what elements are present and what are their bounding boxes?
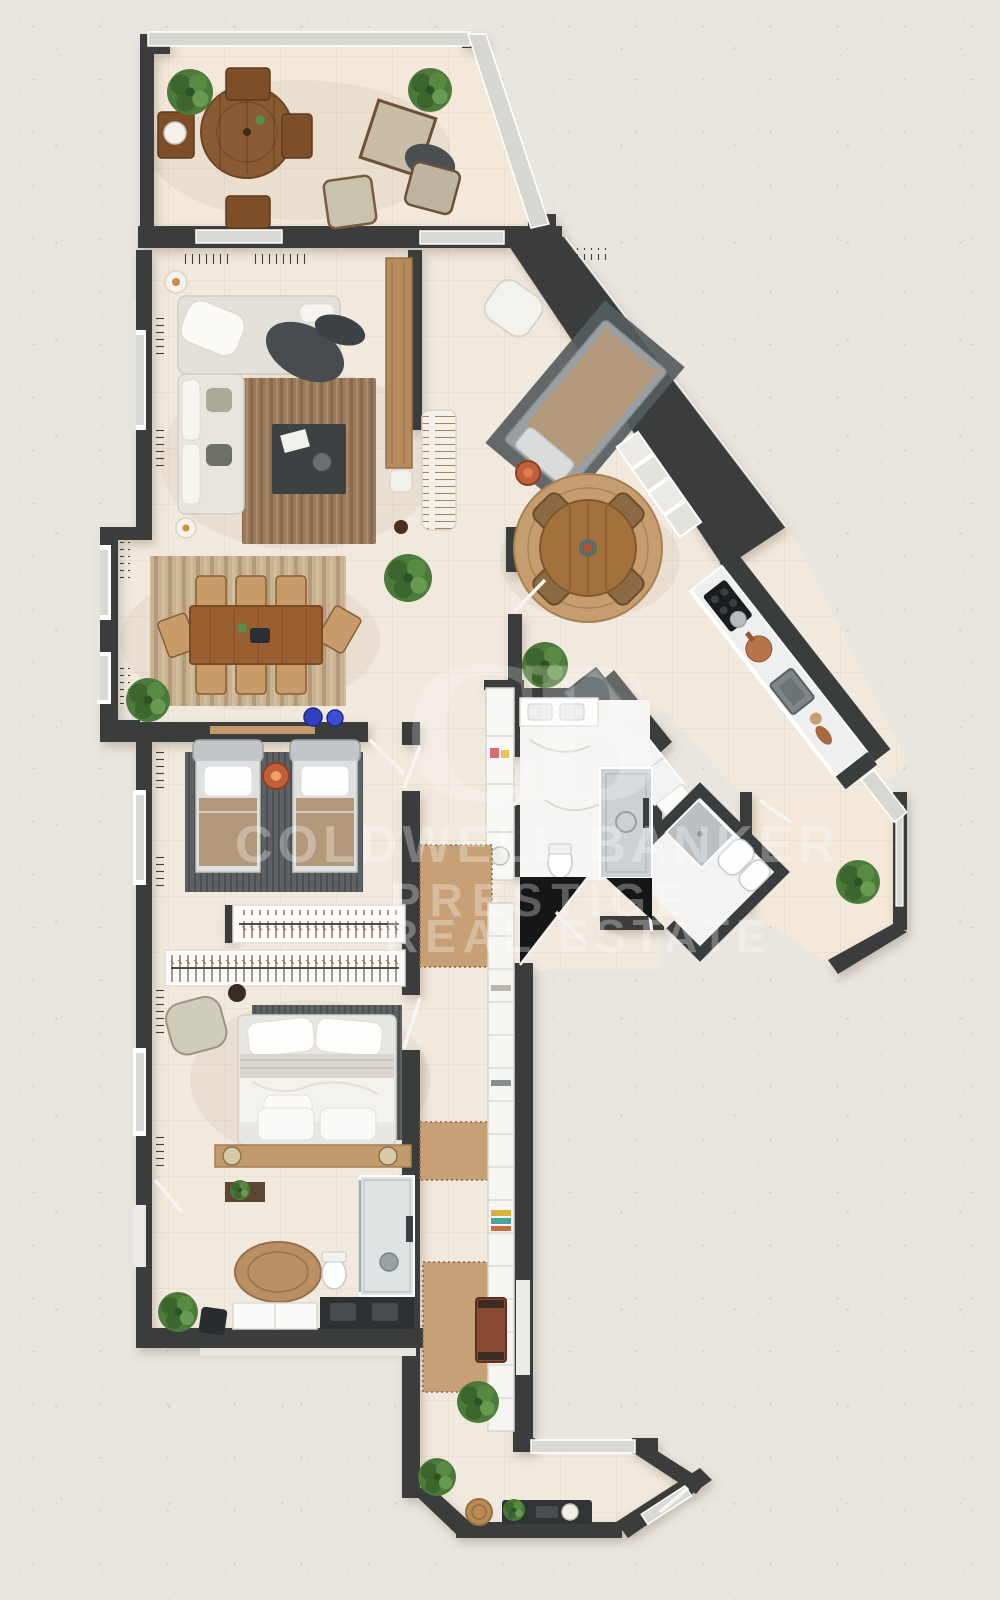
- plant-icon: [457, 1381, 499, 1423]
- table-lamp: [562, 1504, 578, 1520]
- coffee-table: [272, 424, 346, 494]
- dining-chair: [196, 662, 226, 694]
- shower-drain: [380, 1253, 398, 1271]
- decor-plate: [228, 984, 246, 1002]
- dining-chair: [236, 662, 266, 694]
- shower: [360, 1176, 414, 1296]
- stool: [390, 470, 412, 492]
- dining-window-2: [100, 656, 108, 700]
- bowl: [313, 453, 331, 471]
- decor-bowl: [394, 520, 408, 534]
- blue-vase: [304, 708, 322, 726]
- terrace-chair-east: [282, 114, 312, 158]
- plant-icon: [384, 554, 432, 602]
- plant-icon: [158, 1292, 198, 1332]
- entrance-window: [531, 1440, 635, 1453]
- books: [491, 1226, 511, 1231]
- wood-sideboard: [386, 258, 412, 468]
- blue-vase: [327, 710, 343, 726]
- runner-rug: [420, 1122, 490, 1180]
- decor-frame: [536, 1506, 558, 1518]
- master-window: [136, 1053, 144, 1131]
- pouf: [466, 1499, 492, 1525]
- plant-icon: [230, 1180, 250, 1200]
- plant-icon: [503, 1499, 525, 1521]
- plant-icon: [408, 68, 452, 112]
- watermark-line-3: REAL ESTATE: [385, 910, 774, 962]
- pillow: [206, 388, 232, 412]
- exterior-sill: [200, 1348, 416, 1356]
- watermark-line-1: COLDWELL BANKER: [235, 816, 841, 874]
- twin-window: [136, 795, 144, 880]
- shower-handle: [406, 1216, 413, 1242]
- terrace-chair-south: [226, 196, 270, 228]
- dining-window: [100, 550, 108, 615]
- cushion: [320, 1108, 376, 1140]
- pillow: [315, 1017, 384, 1057]
- cushion: [258, 1108, 314, 1140]
- pillow: [206, 444, 232, 466]
- terrace-chair-north: [226, 68, 270, 100]
- pillow: [246, 1017, 315, 1058]
- tea-set: [164, 122, 186, 144]
- floor-plan-image: CB COLDWELL BANKER PRESTIGE REAL ESTATE: [0, 0, 1000, 1600]
- terrace-armchair: [323, 175, 377, 229]
- ensuite-door-opening: [133, 1205, 146, 1267]
- books: [491, 1218, 511, 1224]
- exterior-sill-3: [92, 540, 100, 700]
- terrace-railing: [148, 32, 470, 46]
- toilet: [322, 1259, 346, 1289]
- duvet-fold: [240, 1054, 394, 1078]
- table-lamp: [223, 1147, 241, 1165]
- console-shelf: [210, 726, 315, 734]
- floor-plan-svg: CB COLDWELL BANKER PRESTIGE REAL ESTATE: [0, 0, 1000, 1600]
- plant-icon: [167, 69, 213, 115]
- table-decor: [250, 628, 270, 643]
- books: [491, 1080, 511, 1086]
- dining-chair: [276, 576, 306, 608]
- sink-basin: [372, 1303, 398, 1321]
- books: [491, 985, 511, 991]
- stool: [198, 1306, 227, 1335]
- living-window: [136, 335, 144, 425]
- corridor-side-door: [516, 1280, 530, 1375]
- plant-icon: [418, 1458, 456, 1496]
- radiator: [422, 410, 456, 530]
- table-lamp: [379, 1147, 397, 1165]
- sink-basin: [330, 1303, 356, 1321]
- dining-chair: [196, 576, 226, 608]
- watermark-monogram: CB: [402, 618, 654, 845]
- exterior-sill-2: [128, 300, 136, 430]
- dining-chair: [236, 576, 266, 608]
- terrace-door-2: [420, 231, 504, 244]
- books: [491, 1210, 511, 1216]
- dining-chair: [276, 662, 306, 694]
- plant-icon: [836, 860, 880, 904]
- plant-icon: [126, 678, 170, 722]
- terrace-door: [196, 230, 282, 243]
